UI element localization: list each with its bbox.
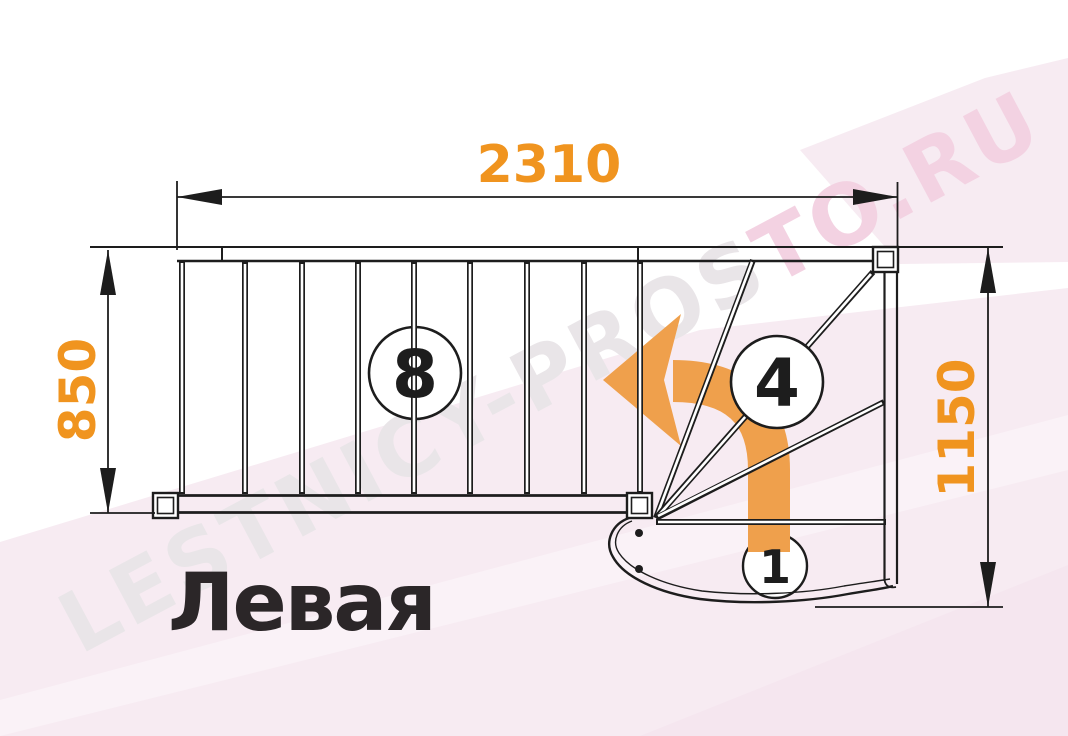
- dimension-label-right: 1150: [928, 358, 986, 497]
- starter-step-count-label: 1: [759, 540, 791, 594]
- dimension-arrowhead-down: [100, 468, 116, 513]
- dimension-label-left: 850: [49, 338, 107, 442]
- winder-count-label: 4: [754, 345, 800, 422]
- staircase-plan-diagram: LESTNICY-PROSTO.RU: [0, 0, 1068, 736]
- dimension-label-top: 2310: [477, 135, 622, 195]
- baluster-dot: [635, 529, 643, 537]
- dimension-arrowhead-up: [100, 250, 116, 295]
- dimension-arrowhead-left: [177, 189, 222, 205]
- baluster-dot: [635, 565, 643, 573]
- variant-title: Левая: [168, 556, 435, 649]
- diagram-canvas: LESTNICY-PROSTO.RU: [0, 0, 1068, 736]
- straight-flight-count-label: 8: [392, 336, 438, 413]
